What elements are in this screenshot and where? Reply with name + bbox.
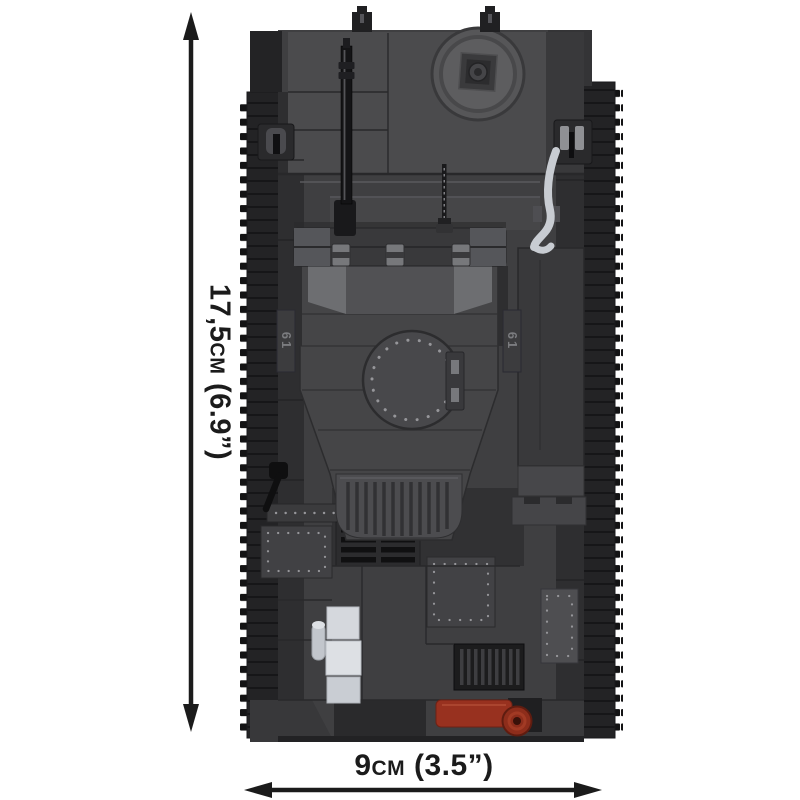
turret-marking-left: 61 — [277, 310, 295, 372]
gun-mantlet — [294, 228, 506, 266]
hatch-hinge — [446, 352, 464, 410]
muzzle-tip — [343, 38, 350, 48]
turret-marking-right: 61 — [503, 310, 521, 372]
height-dimension-arrow — [183, 12, 199, 732]
turret-bustle — [336, 474, 462, 538]
turret-marking-right-text: 61 — [505, 332, 520, 350]
tank-top-view: 61 61 — [239, 6, 623, 742]
product-dimension-image: 61 61 — [0, 0, 800, 800]
turntable-hatch — [432, 28, 524, 120]
height-dimension-label: 17,5cm (6.9”) — [203, 284, 236, 460]
access-panel-right — [541, 589, 578, 663]
right-stowage-panel — [518, 248, 584, 466]
small-cylinder-part — [312, 624, 325, 660]
glacis-panels — [278, 32, 584, 174]
turret-roof-band — [346, 266, 454, 314]
width-dimension-label: 9cm (3.5”) — [354, 749, 493, 783]
track-right — [581, 82, 623, 738]
fender-clamp-right — [554, 120, 592, 164]
turret-marking-left-text: 61 — [279, 332, 294, 350]
access-panel-center — [427, 557, 495, 627]
right-handle-bricks — [512, 466, 586, 525]
width-dimension-arrow — [244, 782, 602, 798]
access-panel-left — [261, 526, 332, 578]
tank-illustration: 61 61 — [0, 0, 800, 800]
track-left — [239, 92, 281, 738]
exhaust-grille — [454, 644, 524, 690]
fender-clamp-left — [258, 124, 294, 160]
